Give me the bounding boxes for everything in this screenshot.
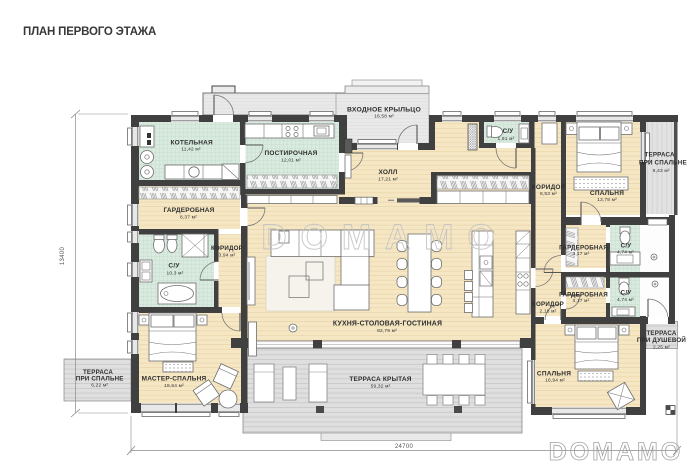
svg-text:DOMAMO: DOMAMO <box>261 218 508 257</box>
svg-text:С/У: С/У <box>621 289 632 296</box>
svg-text:ГАРДЕРОБНАЯ: ГАРДЕРОБНАЯ <box>559 291 608 298</box>
svg-text:24700: 24700 <box>395 444 414 450</box>
svg-text:10,3 м²: 10,3 м² <box>167 271 184 277</box>
svg-text:ГАРДЕРОБНАЯ: ГАРДЕРОБНАЯ <box>163 207 214 214</box>
svg-text:16,94 м²: 16,94 м² <box>545 378 565 384</box>
svg-text:ПРИ СПАЛЬНЕ: ПРИ СПАЛЬНЕ <box>639 159 687 166</box>
svg-text:8,37 м²: 8,37 м² <box>180 215 197 221</box>
svg-text:ХОЛЛ: ХОЛЛ <box>379 169 398 176</box>
svg-text:2,18 м²: 2,18 м² <box>540 308 557 314</box>
svg-text:4,74 м²: 4,74 м² <box>617 297 634 303</box>
svg-text:С/У: С/У <box>168 263 180 270</box>
svg-text:ВХОДНОЕ КРЫЛЬЦО: ВХОДНОЕ КРЫЛЬЦО <box>347 106 421 113</box>
svg-text:ГАРДЕРОБНАЯ: ГАРДЕРОБНАЯ <box>559 244 608 251</box>
svg-text:ТЕРРАСА КРЫТАЯ: ТЕРРАСА КРЫТАЯ <box>349 376 411 383</box>
svg-text:ТЕРРАСА: ТЕРРАСА <box>645 151 675 158</box>
svg-text:3,17 м²: 3,17 м² <box>573 298 590 304</box>
svg-text:13400: 13400 <box>60 247 66 266</box>
svg-text:КОТЕЛЬНАЯ: КОТЕЛЬНАЯ <box>170 139 213 146</box>
svg-text:2,25 м²: 2,25 м² <box>653 345 670 351</box>
svg-text:3,94 м²: 3,94 м² <box>219 252 236 258</box>
svg-text:16,58 м²: 16,58 м² <box>374 114 394 120</box>
svg-text:11,42 м²: 11,42 м² <box>181 147 201 153</box>
svg-text:DOMAMO: DOMAMO <box>549 438 684 466</box>
svg-text:1,91 м²: 1,91 м² <box>498 136 515 142</box>
svg-text:17,21 м²: 17,21 м² <box>378 176 398 182</box>
svg-text:КУХНЯ-СТОЛОВАЯ-ГОСТИНАЯ: КУХНЯ-СТОЛОВАЯ-ГОСТИНАЯ <box>333 321 442 328</box>
svg-text:С/У: С/У <box>503 128 514 135</box>
svg-text:КОРИДОР: КОРИДОР <box>532 301 564 308</box>
svg-text:13,78 м²: 13,78 м² <box>597 197 617 203</box>
svg-text:3,17 м²: 3,17 м² <box>573 251 590 257</box>
svg-text:ПРИ СПАЛЬНЕ: ПРИ СПАЛЬНЕ <box>76 375 124 382</box>
svg-text:ПРИ ДУШЕВОЙ: ПРИ ДУШЕВОЙ <box>637 336 687 344</box>
svg-text:СПАЛЬНЯ: СПАЛЬНЯ <box>590 190 624 197</box>
svg-text:59,32 м²: 59,32 м² <box>371 383 391 389</box>
svg-text:4,74 м²: 4,74 м² <box>617 250 634 256</box>
svg-text:ПОСТИРОЧНАЯ: ПОСТИРОЧНАЯ <box>264 150 317 157</box>
svg-text:18,64 м²: 18,64 м² <box>164 383 184 389</box>
svg-text:82,79 м²: 82,79 м² <box>377 328 397 334</box>
svg-text:12,01 м²: 12,01 м² <box>281 157 301 163</box>
svg-text:СПАЛЬНЯ: СПАЛЬНЯ <box>537 371 571 378</box>
svg-text:6,22 м²: 6,22 м² <box>91 383 108 389</box>
svg-text:6,43 м²: 6,43 м² <box>653 168 670 174</box>
svg-text:МАСТЕР-СПАЛЬНЯ: МАСТЕР-СПАЛЬНЯ <box>142 376 207 383</box>
svg-text:6,53 м²: 6,53 м² <box>540 191 557 197</box>
svg-text:ПЛАН ПЕРВОГО ЭТАЖА: ПЛАН ПЕРВОГО ЭТАЖА <box>23 26 156 38</box>
svg-text:С/У: С/У <box>621 242 632 249</box>
svg-text:КОРИДОР: КОРИДОР <box>532 184 566 191</box>
svg-text:КОРИДОР: КОРИДОР <box>211 245 243 252</box>
